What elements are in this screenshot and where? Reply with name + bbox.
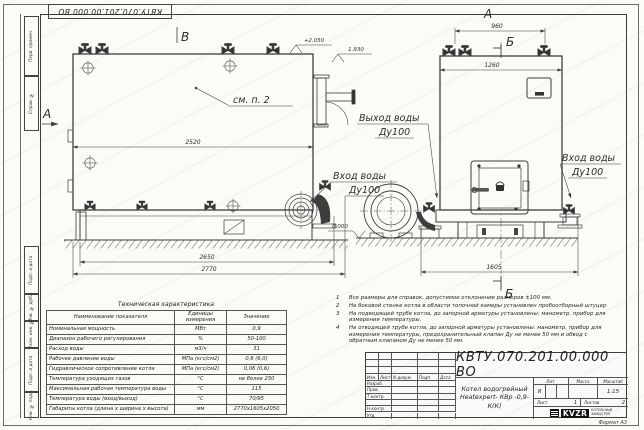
front-view — [356, 42, 582, 292]
callout-inlet-front-line1: Вход воды — [562, 153, 616, 164]
callout-inlet-side-line2: Ду100 — [348, 185, 380, 196]
elev-top: +2.050 — [304, 38, 325, 44]
tb-sheet-label: Лист — [537, 400, 547, 405]
table-row: Температура воды (вход/выход)°С70/95 — [47, 395, 287, 405]
list-item: 4На отводящей трубе котла, до запорной а… — [336, 325, 613, 344]
ground-hatch-right — [356, 239, 578, 247]
table-row: Максимальная рабочая температура воды°С1… — [47, 385, 287, 395]
notes-list: 1Все размеры для справок, допустимое отк… — [336, 295, 613, 346]
valve-icon — [96, 44, 108, 54]
tb-row-utv: Утв. — [366, 413, 392, 420]
tech-header-unit: Единицы измерения — [175, 311, 227, 325]
outlet-pipe-assembly — [314, 75, 355, 127]
tb-col-data: Дата — [439, 374, 456, 381]
table-row: Гидравлическое сопротивление котлаМПа (к… — [47, 365, 287, 375]
door-handle — [472, 188, 489, 192]
blueprint-sheet: { "frame": { "doc_number": "КВТУ.070.201… — [0, 0, 644, 430]
list-item: 2На боковой стенке котла в области топоч… — [336, 303, 613, 309]
valve-icon — [538, 46, 550, 56]
list-item: 1Все размеры для справок, допустимое отк… — [336, 295, 613, 301]
dim-1260: 1260 — [484, 62, 499, 69]
tb-mass-header: Масса — [569, 378, 598, 385]
view-mark-a-top: А — [483, 7, 492, 21]
valve-icon — [443, 46, 455, 56]
ground-hatch-left — [64, 241, 348, 249]
elev-outlet: 1.930 — [348, 47, 364, 53]
logo-text: KVZR — [561, 409, 589, 418]
tb-col-doc: N докум. — [392, 374, 418, 381]
tech-header-value: Значение — [227, 311, 287, 325]
tb-col-podp: Подп. — [418, 374, 439, 381]
callout-inlet-front-line2: Ду100 — [571, 167, 603, 178]
boiler-base-side — [80, 210, 312, 240]
elev-ground: 0.000 — [332, 224, 348, 230]
table-row: Номинальная мощностьМВт0,9 — [47, 325, 287, 335]
tb-sheet-value: 1 — [574, 400, 577, 406]
tech-table: Техническая характеристика Наименование … — [46, 301, 286, 415]
title-block-doc-number: КВТУ.070.201.00.000 ВО — [456, 353, 628, 378]
tb-scale-header: Масштаб — [598, 378, 628, 385]
table-row: Габариты котла (длина х ширина х высота)… — [47, 405, 287, 415]
dim-960: 960 — [491, 23, 503, 30]
tech-table-title: Техническая характеристика — [46, 301, 286, 308]
tb-lit-value: И — [534, 385, 546, 399]
dim-2650: 2650 — [199, 254, 214, 261]
valve-icon — [79, 44, 91, 54]
tb-mass-value — [569, 385, 598, 399]
side-view — [64, 44, 355, 249]
valve-icon — [564, 205, 575, 214]
section-mark-b-top: Б — [506, 35, 514, 49]
kvzr-logo: KVZR КОТЕЛЬНЫЙ ЗАВОД РЭП — [534, 407, 628, 419]
tech-header-name: Наименование показателя — [47, 311, 175, 325]
table-row: Диапазон рабочего регулирования%50-100 — [47, 335, 287, 345]
dim-2520: 2520 — [185, 139, 200, 146]
table-row: Температура уходящих газов°Сне более 250 — [47, 375, 287, 385]
product-name: Котел водогрейный Heatexpert- КВр -0,9- … — [456, 378, 534, 419]
tb-sheets-value: 2 — [622, 400, 625, 406]
tb-col-list: Лист — [379, 374, 392, 381]
door-lock — [496, 185, 504, 191]
valve-icon — [222, 44, 234, 54]
valve-icon — [424, 203, 435, 212]
dim-1605: 1605 — [486, 264, 501, 271]
title-block: Изм. Лист N докум. Подп. Дата Разраб. Пр… — [365, 352, 627, 418]
valve-icon — [267, 44, 279, 54]
logo-bars-icon — [550, 409, 559, 417]
callout-inlet-side-line1: Вход воды — [333, 171, 387, 182]
valve-icon — [320, 181, 331, 190]
boiler-body-side — [73, 54, 313, 210]
callout-outlet-line2: Ду100 — [378, 127, 410, 138]
format-label: Формат А3 — [560, 420, 627, 426]
valve-icon — [459, 46, 471, 56]
callout-outlet-line1: Выход воды — [359, 113, 420, 124]
table-row: Расход водым3/ч31 — [47, 345, 287, 355]
tech-table-header-row: Наименование показателя Единицы измерени… — [47, 311, 287, 325]
note-ref: см. п. 2 — [233, 95, 270, 106]
tb-col-izm: Изм. — [366, 374, 379, 381]
dim-2770: 2770 — [201, 266, 216, 273]
list-item: 3На подводящей трубе котла, до запорной … — [336, 311, 613, 324]
tb-sheets-label: Листов — [584, 400, 599, 405]
drain-elbow — [312, 194, 330, 224]
view-mark-v: В — [181, 30, 189, 44]
logo-caption: КОТЕЛЬНЫЙ ЗАВОД РЭП — [591, 409, 612, 417]
tb-scale-value: 1:15 — [598, 385, 628, 399]
section-mark-a-left: А — [42, 107, 51, 121]
table-row: Рабочее давление водыМПа (кгс/см2)0,6 (6… — [47, 355, 287, 365]
tb-lit-header: Лит. — [534, 378, 569, 385]
